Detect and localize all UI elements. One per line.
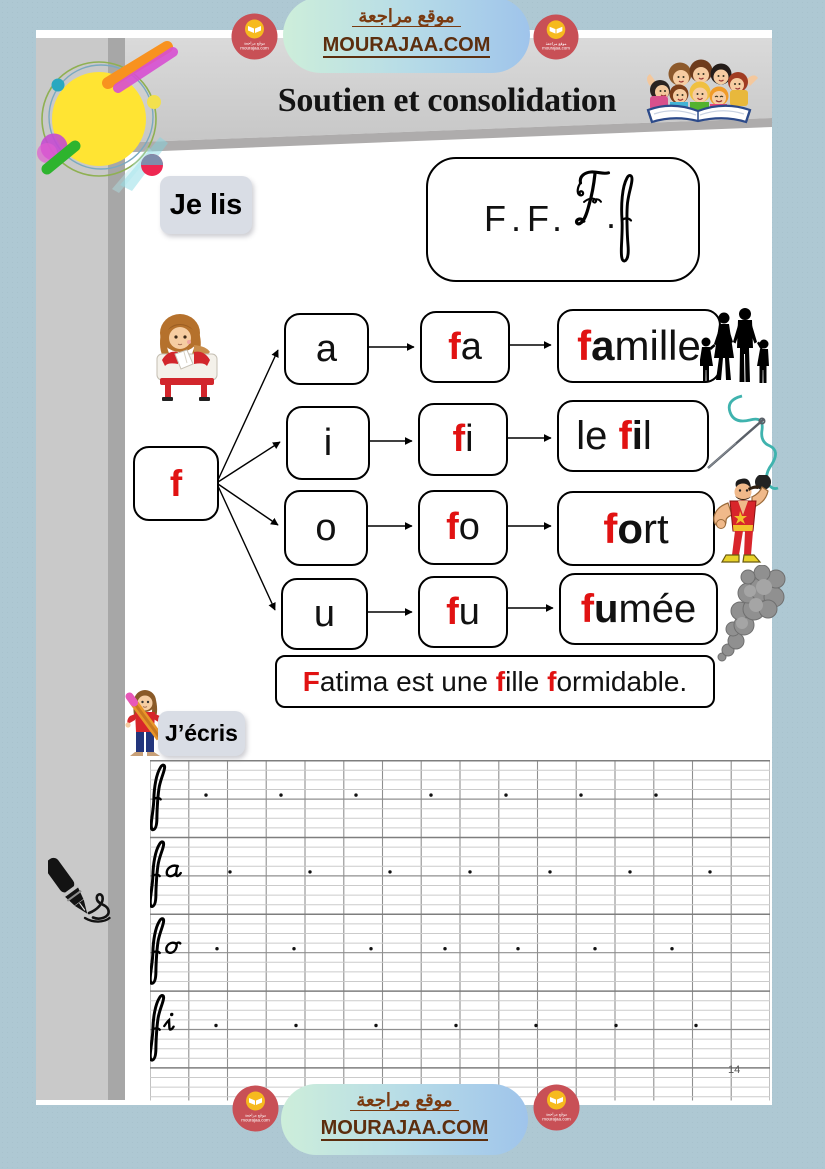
svg-text:mourajaa.com: mourajaa.com — [240, 46, 269, 51]
svg-text:F: F — [484, 198, 506, 239]
svg-text:mourajaa.com: mourajaa.com — [241, 1118, 270, 1123]
svg-text:.: . — [606, 195, 616, 236]
svg-text:.: . — [511, 198, 521, 239]
svg-text:.: . — [552, 198, 562, 239]
svg-text:mourajaa.com: mourajaa.com — [542, 46, 570, 51]
svg-text:F: F — [527, 198, 549, 239]
svg-text:mourajaa.com: mourajaa.com — [542, 1117, 571, 1122]
